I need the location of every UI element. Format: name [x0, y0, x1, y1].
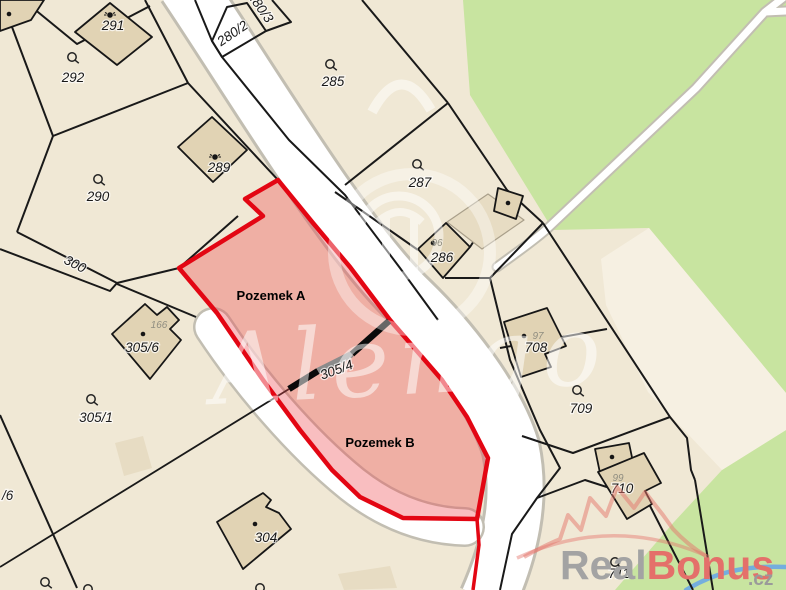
pozemek-b-label: Pozemek B: [345, 435, 414, 450]
parcel-label-305-6: 305/6: [125, 340, 159, 355]
house-number-99: 99: [612, 473, 624, 484]
map-viewport: Alengo 291 292 290 289 285 287 286 280/2…: [0, 0, 786, 590]
house-number-96: 96: [431, 238, 443, 249]
parcel-label-287: 287: [408, 175, 432, 190]
building-point-icon: [253, 522, 258, 527]
parcel-label-289: 289: [207, 160, 231, 175]
parcel-label-291: 291: [101, 18, 125, 33]
parcel-label-708: 708: [525, 340, 548, 355]
house-number-97: 97: [532, 331, 544, 342]
logo-text: RealBonus: [560, 542, 774, 588]
building-point-icon: [506, 201, 511, 206]
parcel-label-285: 285: [321, 74, 345, 89]
building-point-icon: [610, 455, 615, 460]
logo-text-gray: Real: [560, 542, 647, 588]
parcel-label-305-1: 305/1: [79, 410, 113, 425]
parcel-label-286: 286: [430, 250, 454, 265]
building-point-icon: [141, 332, 146, 337]
pozemek-a-label: Pozemek A: [237, 288, 306, 303]
parcel-label-290: 290: [86, 189, 110, 204]
cadastral-map-canvas[interactable]: Alengo 291 292 290 289 285 287 286 280/2…: [0, 0, 786, 590]
logo-tld: .cz: [748, 569, 773, 590]
house-number-166: 166: [151, 320, 168, 331]
parcel-label-709: 709: [570, 401, 593, 416]
parcel-label-6: /6: [1, 488, 14, 503]
watermark-text: Alengo: [200, 293, 612, 428]
parcel-label-292: 292: [61, 70, 85, 85]
building-point-icon: [7, 12, 12, 17]
parcel-label-304: 304: [255, 530, 278, 545]
